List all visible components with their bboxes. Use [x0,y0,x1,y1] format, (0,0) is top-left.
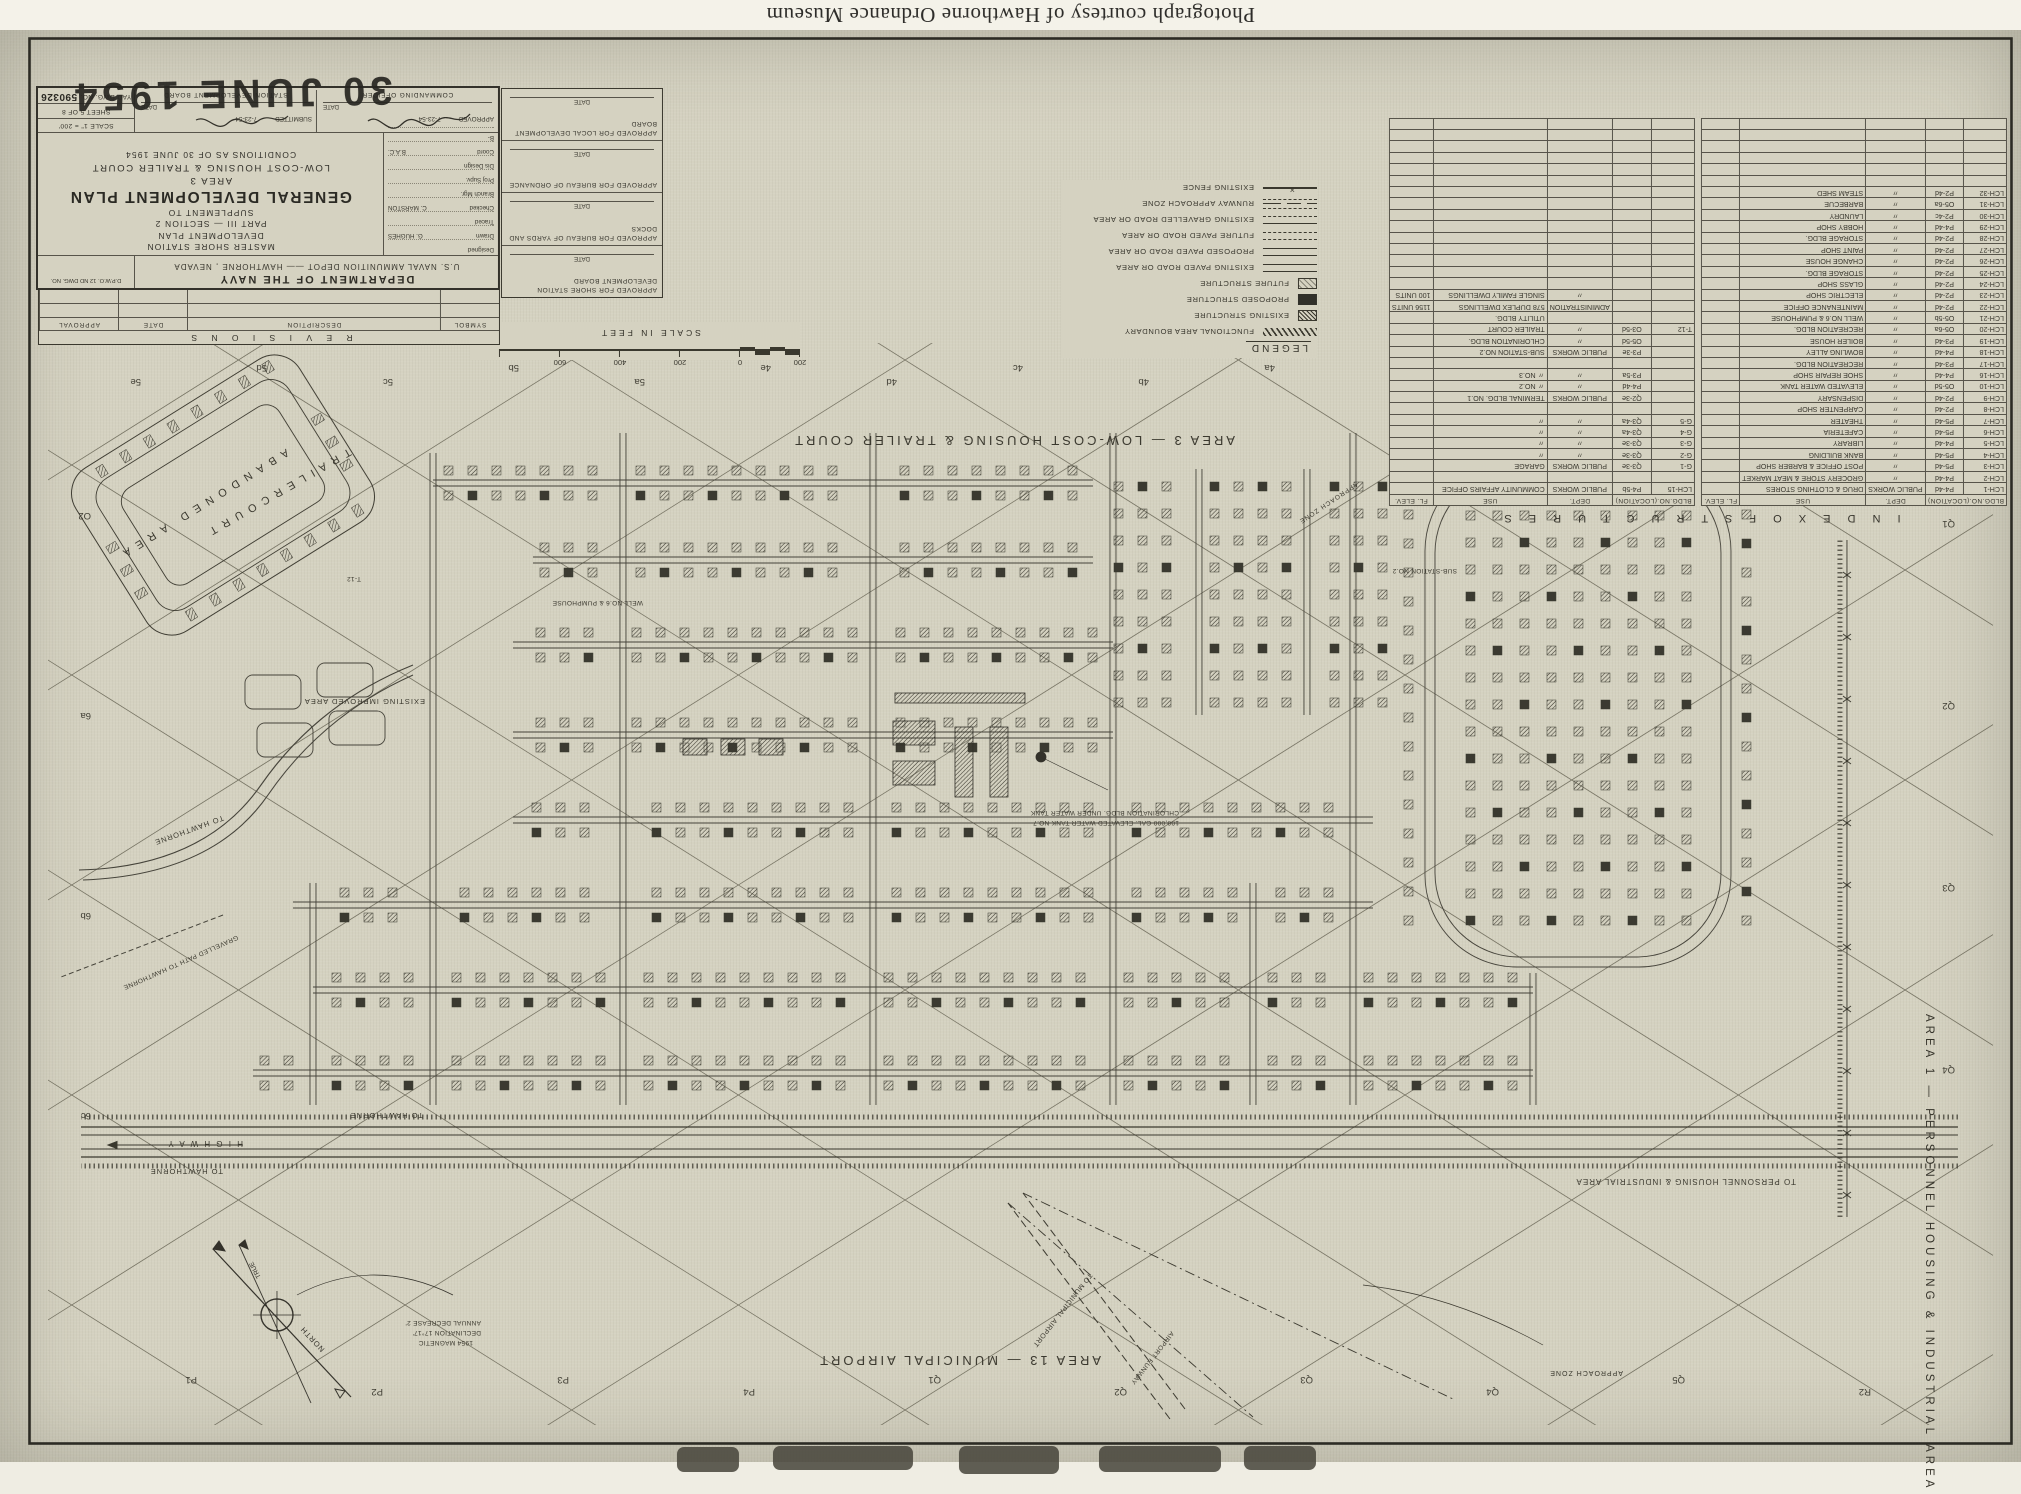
index-row: G-3Q3-3e〃〃 [1390,437,1695,448]
index-cell [1925,141,1964,152]
cropped-print-fragment [1099,1446,1221,1472]
index-cell: COMMUNITY AFFAIRS OFFICE [1433,483,1547,494]
index-cell [1740,175,1866,186]
revisions-empty-cell [187,290,440,303]
index-cell [1547,221,1612,232]
index-row: LCH-9P2-4d〃DISPENSARY [1702,392,2007,403]
index-cell: 〃 [1866,312,1925,323]
area-line: AREA 3 [38,173,383,186]
revisions-empty-cell [118,304,187,317]
approval-blocks: APPROVED FOR SHORE STATION DEVELOPMENT B… [501,88,663,298]
index-cell: G-2 [1651,449,1694,460]
index-cell [1925,130,1964,141]
index-cell [1925,164,1964,175]
index-cell [1390,175,1434,186]
index-cell: 〃 [1866,244,1925,255]
index-row [1390,471,1695,482]
index-cell: PUBLIC WORKS [1866,483,1925,494]
staff-row: Traced [388,211,494,225]
index-row [1390,403,1695,414]
index-cell: P3-4d [1925,357,1964,368]
index-cell: LCH-31 [1964,198,2007,209]
index-cell: P3-5a [1612,369,1651,380]
index-cell: PUBLIC WORKS [1547,483,1612,494]
index-cell [1547,164,1612,175]
index-cell [1390,449,1434,460]
grid-label-P3: P3 [557,1374,569,1385]
to-personnel-label: TO PERSONNEL HOUSING & INDUSTRIAL AREA [1576,1177,1796,1186]
index-cell: 578 DUPLEX DWELLINGS [1433,300,1547,311]
index-cell: G-3 [1651,437,1694,448]
index-cell [1612,209,1651,220]
scale-bar-segment [785,351,800,355]
index-cell [1866,175,1925,186]
approval-date-line: DATE [510,149,654,157]
index-cell [1612,403,1651,414]
index-cell [1547,266,1612,277]
index-cell: 〃 [1866,392,1925,403]
index-cell [1651,118,1694,129]
index-cell: T-12 [1651,323,1694,334]
index-cell [1390,244,1434,255]
index-cell [1740,118,1866,129]
grid-label-5b: 5b [508,362,519,373]
approval-label: APPROVED FOR BUREAU OF ORDNANCE [507,180,657,189]
scale-bar-label: SCALE IN FEET [500,328,800,338]
drawing-title: MASTER SHORE STATION DEVELOPMENT PLAN PA… [38,133,383,255]
subtitle-2: CONDITIONS AS OF 30 JUNE 1954 [38,148,383,159]
index-cell: TRAILER COURT [1433,323,1547,334]
index-row: LCH-7P5-4d〃THEATER [1702,414,2007,425]
index-cell [1547,187,1612,198]
index-cell: P2-4d [1925,266,1964,277]
index-cell [1390,426,1434,437]
index-cell [1390,335,1434,346]
grid-label-5a: 5a [634,376,645,387]
index-cell: PAINT SHOP [1740,244,1866,255]
index-cell [1612,187,1651,198]
index-cell: 〃 [1866,266,1925,277]
scale-tick [619,349,620,357]
index-cell [1651,300,1694,311]
index-cell [1702,312,1740,323]
index-title: I N D E X O F S T R U C T U R E S [1391,512,2007,524]
scale-tick [559,349,560,357]
legend-item: FUNCTIONAL AREA BOUNDARY [1061,324,1317,340]
grid-label-Q3: Q3 [1942,882,1955,893]
index-cell: 〃 [1866,471,1925,482]
grid-label-5d: 5d [256,362,267,373]
staff-value: C. MARSTON [388,198,427,211]
index-cell [1547,130,1612,141]
index-row [1390,357,1695,368]
proposed-symbol-icon [1298,295,1317,306]
scale-number: 600 [554,358,567,367]
index-cell: 〃 [1547,335,1612,346]
index-cell [1866,118,1925,129]
legend-item-label: EXISTING GRAVELLED ROAD OR AREA [1093,216,1254,225]
index-cell [1740,164,1866,175]
department-title: DEPARTMENT OF THE NAVY [135,273,498,285]
index-cell: 〃 [1866,380,1925,391]
index-cell [1651,471,1694,482]
water-tank-label: 100,000 GAL. ELEVATED WATER TANK NO.7 [1033,819,1179,826]
declination-note-1: 1954 MAGNETIC [419,1339,473,1346]
index-cell: GARAGE [1433,460,1547,471]
index-cell: 〃 [1547,323,1612,334]
cropped-print-fragment [677,1447,739,1472]
approach-zone-label: APPROACH ZONE [1549,1369,1623,1376]
index-row [1390,175,1695,186]
index-cell: CAFETERIA [1740,426,1866,437]
index-cell [1547,141,1612,152]
legend-item: EXISTING STRUCTURE [1061,308,1317,324]
index-cell [1433,471,1547,482]
index-cell [1740,152,1866,163]
index-row [1702,175,2007,186]
index-cell [1390,278,1434,289]
index-cell: LAUNDRY [1740,209,1866,220]
index-cell: LIBRARY [1740,437,1866,448]
to-hawthorne-street-label: TO HAWTHORNE [350,1111,423,1120]
index-row [1702,164,2007,175]
index-cell [1964,152,2007,163]
index-cell: LCH-30 [1964,209,2007,220]
index-cell [1651,255,1694,266]
index-cell [1702,164,1740,175]
staff-label: Checked [470,198,494,211]
index-cell [1547,175,1612,186]
index-cell: LCH-24 [1964,278,2007,289]
index-cell: 〃 [1866,187,1925,198]
index-row: LCH-8P2-4d〃CARPENTER SHOP [1702,403,2007,414]
index-cell: 1156 UNITS [1390,300,1434,311]
index-cell [1612,221,1651,232]
index-row [1390,255,1695,266]
revisions-block: R E V I S I O N S SYMBOLDESCRIPTIONDATEA… [38,288,500,345]
compass-north-label: NORTH [298,1325,326,1354]
scale-bar-segment [755,351,770,355]
index-cell [1651,152,1694,163]
revisions-empty-cell [440,304,499,317]
staff-label: Coord [477,142,494,155]
index-row [1390,152,1695,163]
revisions-empty-cell [39,304,118,317]
main-title: GENERAL DEVELOPMENT PLAN [38,187,383,205]
substation-label: SUB-STATION NO.2 [1392,567,1457,574]
index-cell [1390,209,1434,220]
index-cell: RECREATION BLDG. [1740,357,1866,368]
existing-improved-label: EXISTING IMPROVED AREA [304,697,425,706]
index-cell [1390,164,1434,175]
index-cell: LCH-21 [1964,312,2007,323]
index-cell [1547,118,1612,129]
legend-item-label: FUTURE PAVED ROAD OR AREA [1122,232,1254,241]
index-cell [1433,209,1547,220]
index-cell [1702,357,1740,368]
index-cell: LCH-17 [1964,357,2007,368]
index-cell: 〃 [1433,449,1547,460]
staff-label: Drawn [476,226,494,239]
index-cell [1651,278,1694,289]
index-cell [1651,403,1694,414]
approval-date-line: DATE [510,97,654,105]
index-cell [1702,380,1740,391]
index-cell [1433,118,1547,129]
index-cell [1612,255,1651,266]
revisions-column-symbol: SYMBOL [440,318,499,330]
index-cell: P2-4d [1925,244,1964,255]
grid-label-Q5: Q5 [1672,1374,1685,1385]
index-cell: 〃 [1866,289,1925,300]
index-cell [1390,232,1434,243]
index-cell [1612,130,1651,141]
index-cell: 〃 [1547,380,1612,391]
grid-label-5c: 5c [383,376,393,387]
index-cell: P5-4d [1925,460,1964,471]
index-cell [1964,175,2007,186]
index-row: O5-5d〃CHLORINATION BLDG. [1390,335,1695,346]
index-cell [1702,403,1740,414]
index-cell [1612,300,1651,311]
index-cell [1433,152,1547,163]
index-cell [1433,141,1547,152]
index-cell: THEATER [1740,414,1866,425]
index-cell: 〃 [1866,449,1925,460]
index-cell [1702,130,1740,141]
index-cell [1702,426,1740,437]
legend-item: FUTURE PAVED ROAD OR AREA [1061,228,1317,244]
index-row: LCH-32P2-4d〃STEAM SHED [1702,187,2007,198]
index-row: LCH-1P4-4dPUBLIC WORKSDRUG & CLOTHING ST… [1702,483,2007,494]
index-cell [1612,164,1651,175]
index-cell: POST OFFICE & BARBER SHOP [1740,460,1866,471]
approval-date-line: DATE [510,254,654,262]
index-cell: P3-4d [1925,335,1964,346]
index-cell: P2-4d [1925,278,1964,289]
index-cell: 〃 [1866,209,1925,220]
index-cell: P4-4d [1925,369,1964,380]
index-row [1390,266,1695,277]
index-cell [1390,152,1434,163]
index-cell: LCH-16 [1964,369,2007,380]
revisions-empty-cell [440,290,499,303]
index-cell: O3-5d [1612,323,1651,334]
revisions-title: R E V I S I O N S [39,330,499,344]
index-cell [1740,130,1866,141]
index-row [1390,198,1695,209]
index-cell: 〃 [1547,437,1612,448]
index-cell [1651,335,1694,346]
index-cell [1390,471,1434,482]
index-cell: 〃 [1866,300,1925,311]
index-cell [1702,232,1740,243]
area13-label: AREA 13 — MUNICIPAL AIRPORT [817,1353,1101,1368]
index-cell: 〃 [1547,369,1612,380]
grid-label-Q4: Q4 [1486,1386,1499,1397]
index-cell: PUBLIC WORKS [1547,346,1612,357]
index-cell: LCH-1 [1964,483,2007,494]
index-cell: LCH-9 [1964,392,2007,403]
approval-cell: APPROVED FOR BUREAU OF ORDNANCEDATE [502,140,662,192]
index-cell [1547,152,1612,163]
index-cell: LCH-6 [1964,426,2007,437]
gravel-symbol-icon [1263,216,1317,224]
index-cell [1702,460,1740,471]
revisions-column-approval: APPROVAL [39,318,118,330]
revisions-empty-cell [39,290,118,303]
index-row: LCH-29P4-4d〃HOBBY SHOP [1702,221,2007,232]
index-cell: P4-4d [1925,483,1964,494]
index-cell: LCH-4 [1964,449,2007,460]
index-cell [1433,198,1547,209]
index-cell: LCH-8 [1964,403,2007,414]
index-cell: 〃 [1866,414,1925,425]
index-cell [1612,232,1651,243]
index-cell: Q3-4a [1612,414,1651,425]
index-cell: 〃 [1866,426,1925,437]
index-cell: LCH-22 [1964,300,2007,311]
index-cell [1390,380,1434,391]
index-cell [1433,221,1547,232]
index-cell: DISPENSARY [1740,392,1866,403]
legend-item-label: EXISTING STRUCTURE [1194,312,1289,321]
index-cell: UTILITY BLDG. [1433,312,1547,323]
index-row: LCH-25P2-4d〃STORAGE BLDG. [1702,266,2007,277]
legend: LEGEND FUNCTIONAL AREA BOUNDARYEXISTING … [1061,180,1317,358]
index-cell: P3-3e [1612,346,1651,357]
revisions-empty-cell [187,304,440,317]
scale-number: 0 [738,358,742,367]
index-cell: 〃 [1866,323,1925,334]
scale-number: 200 [794,358,807,367]
index-cell [1390,369,1434,380]
index-cell: O5-5d [1612,335,1651,346]
index-cell [1964,164,2007,175]
index-cell: P2-4d [1925,232,1964,243]
index-cell [1390,198,1434,209]
index-row [1702,118,2007,129]
legend-item: PROPOSED STRUCTURE [1061,292,1317,308]
index-cell: GROCERY STORE & MEAT MARKET [1740,471,1866,482]
index-cell: 〃 [1866,346,1925,357]
index-cell: TERMINAL BLDG. NO.1 [1433,392,1547,403]
index-cell [1702,118,1740,129]
index-cell [1547,244,1612,255]
index-cell [1740,141,1866,152]
index-row: G-5Q3-4a〃〃 [1390,414,1695,425]
index-cell: BOWLING ALLEY [1740,346,1866,357]
index-cell [1612,278,1651,289]
index-row [1390,244,1695,255]
index-cell: STORAGE BLDG. [1740,266,1866,277]
staff-row: CoordB.A.C. [388,141,494,155]
index-header: BLDG.NO.(LOCATION) [1612,494,1694,505]
index-cell: STORAGE BLDG. [1740,232,1866,243]
index-cell: 〃 [1433,426,1547,437]
index-cell [1702,449,1740,460]
staff-column: DesignedDrawnG. HUGHESTracedCheckedC. MA… [383,133,498,255]
index-row [1702,152,2007,163]
grid-label-R2: R2 [1859,1386,1871,1397]
approval-date-line: DATE [510,202,654,210]
index-cell: LCH-26 [1964,255,2007,266]
revisions-column-date: DATE [118,318,187,330]
index-cell: P4-4d [1925,471,1964,482]
index-cell: PUBLIC WORKS [1547,392,1612,403]
scale-cell: SCALE 1" = 200' [38,118,134,132]
index-row: LCH-3P5-4d〃POST OFFICE & BARBER SHOP [1702,460,2007,471]
legend-title: LEGEND [1246,341,1311,353]
grid-label-O2: O2 [78,510,91,521]
index-cell [1433,175,1547,186]
index-cell [1612,471,1651,482]
index-cell [1702,187,1740,198]
index-row: LCH-28P2-4d〃STORAGE BLDG. [1702,232,2007,243]
legend-item-label: RUNWAY APPROACH ZONE [1142,200,1254,209]
legend-item: EXISTING GRAVELLED ROAD OR AREA [1061,212,1317,228]
index-cell: CARPENTER SHOP [1740,403,1866,414]
index-cell [1866,141,1925,152]
index-cell: PUBLIC WORKS [1547,460,1612,471]
approval-cell: APPROVED FOR SHORE STATION DEVELOPMENT B… [502,245,662,297]
index-cell [1702,278,1740,289]
index-cell [1702,471,1740,482]
index-cell: 〃 [1433,437,1547,448]
staff-row: CheckedC. MARSTON [388,197,494,211]
index-cell [1702,323,1740,334]
staff-label: Proj Supv. [466,170,494,183]
index-row: LCH-19P3-4d〃BOILER HOUSE [1702,335,2007,346]
index-row: LCH-22P2-4d〃MAINTENANCE OFFICE [1702,300,2007,311]
index-cell: CHLORINATION BLDG. [1433,335,1547,346]
staff-row: Branch Mgr. [388,183,494,197]
scale-number: 200 [674,358,687,367]
index-cell [1390,357,1434,368]
approval-label: APPROVED FOR LOCAL DEVELOPMENT BOARD [507,119,657,137]
index-cell: 〃 [1547,414,1612,425]
index-cell [1866,152,1925,163]
grid-label-Q2: Q2 [1942,700,1955,711]
index-cell [1547,278,1612,289]
index-cell [1433,403,1547,414]
index-cell: P2-4d [1925,403,1964,414]
index-row [1390,164,1695,175]
index-cell [1651,380,1694,391]
staff-row: Proj Supv. [388,169,494,183]
index-cell [1702,244,1740,255]
index-cell: 〃 [1866,437,1925,448]
index-cell [1547,209,1612,220]
index-cell [1651,175,1694,186]
index-row: LCH-15P4-5bPUBLIC WORKSCOMMUNITY AFFAIRS… [1390,483,1695,494]
index-cell: 〃 [1547,289,1612,300]
blueprint-photo: ABANDONED AREANORTHTRUE3a3b3c3d3e4a4b4c4… [0,28,2021,1462]
index-cell: LCH-20 [1964,323,2007,334]
index-cell [1390,483,1434,494]
index-table-left: BLDG.NO.(LOCATION)DEPT.USEFL. ELEV.LCH-1… [1701,118,2007,506]
index-row: LCH-31O5-6a〃BARBECUE [1702,198,2007,209]
index-cell [1651,130,1694,141]
index-cell: SINGLE FAMILY DWELLINGS [1433,289,1547,300]
index-header: BLDG.NO.(LOCATION) [1925,494,2006,505]
index-cell [1651,266,1694,277]
grid-label-P1: P1 [185,1374,197,1385]
index-cell: BARBECUE [1740,198,1866,209]
paved-future-symbol-icon [1263,232,1317,240]
index-cell: 〃 [1866,369,1925,380]
index-row: UTILITY BLDG. [1390,312,1695,323]
